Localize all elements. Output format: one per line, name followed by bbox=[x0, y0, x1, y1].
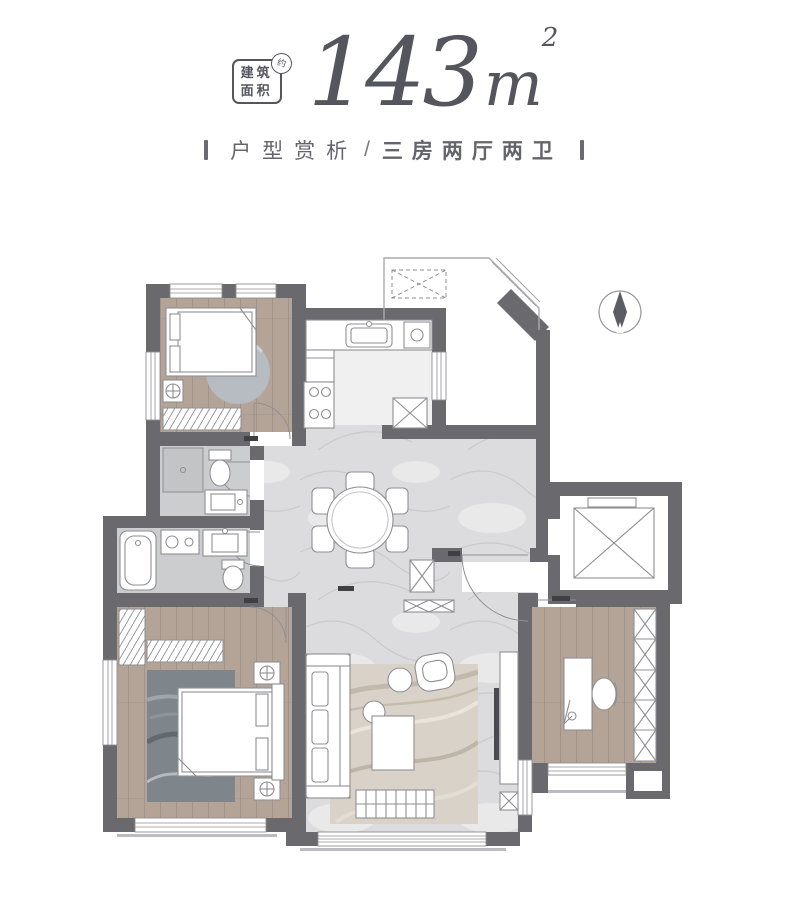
kitchen-appliance bbox=[404, 322, 430, 348]
toilet bbox=[210, 460, 230, 486]
shower bbox=[163, 448, 203, 492]
hallway-floor bbox=[264, 446, 292, 607]
side-table-1 bbox=[388, 668, 412, 692]
compass-icon bbox=[599, 291, 641, 333]
shoe-cabinet bbox=[404, 600, 454, 612]
bedroom2-left-window bbox=[146, 352, 160, 420]
hall-handle bbox=[338, 586, 354, 591]
wardrobe-long bbox=[147, 640, 223, 662]
wardrobe bbox=[163, 408, 241, 430]
living-right-window bbox=[518, 760, 532, 815]
kitchen-cabinet bbox=[306, 350, 334, 382]
entry-landing bbox=[462, 562, 536, 592]
floorplan-drawing bbox=[0, 0, 788, 900]
master-bottom-window bbox=[117, 818, 277, 837]
dining-table bbox=[327, 487, 393, 553]
kitchen-right-window bbox=[432, 352, 446, 400]
master-left-window bbox=[103, 660, 117, 745]
bedroom2-top-window-2 bbox=[236, 284, 276, 298]
bedroom2-top-window bbox=[170, 284, 222, 298]
tv-console bbox=[500, 652, 518, 784]
desk-chair bbox=[592, 678, 616, 710]
headboard bbox=[272, 684, 284, 780]
toilet-tank bbox=[209, 450, 231, 460]
elevator-opening bbox=[548, 519, 560, 555]
tv bbox=[494, 688, 499, 760]
coffee-table bbox=[372, 716, 414, 770]
toilet-master bbox=[223, 566, 243, 590]
armchair bbox=[413, 651, 457, 693]
floorplan-page: 建筑 面积 约 143m2 户型赏析 / 三房两厅两卫 bbox=[0, 0, 788, 900]
living-bottom-window bbox=[300, 832, 506, 851]
elevator-door bbox=[588, 498, 636, 507]
wardrobe-tall bbox=[119, 609, 145, 665]
study-bottom-window bbox=[548, 763, 626, 793]
